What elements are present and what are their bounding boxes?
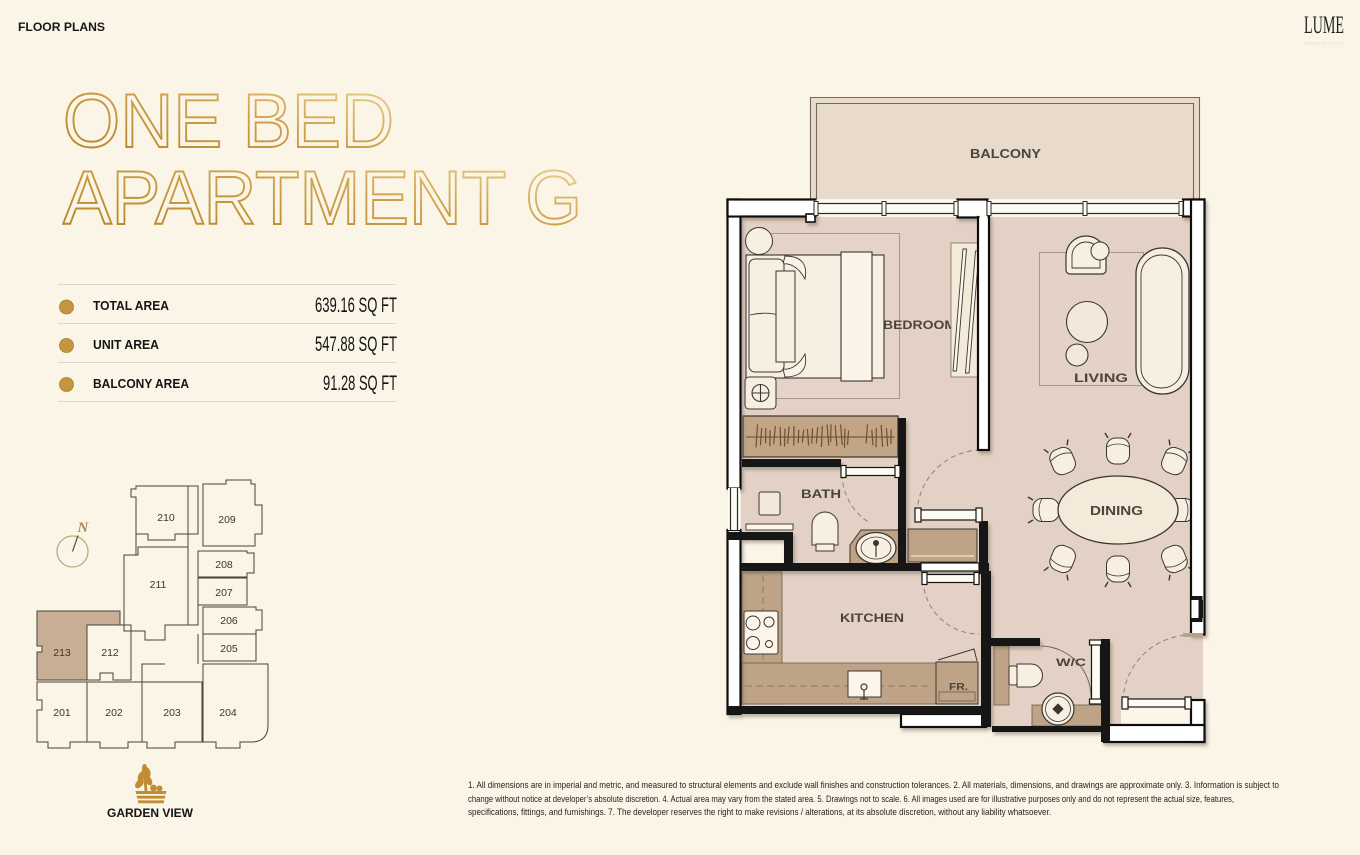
- svg-text:213: 213: [53, 647, 71, 659]
- svg-text:210: 210: [157, 512, 175, 524]
- svg-text:207: 207: [215, 587, 233, 599]
- svg-text:1. All dimensions are in imper: 1. All dimensions are in imperial and me…: [468, 780, 1279, 790]
- svg-text:211: 211: [150, 579, 167, 591]
- svg-text:204: 204: [219, 707, 237, 719]
- svg-text:specifications, fittings, and: specifications, fittings, and furnishing…: [468, 807, 1051, 817]
- svg-text:203: 203: [163, 707, 181, 719]
- svg-text:205: 205: [220, 643, 238, 655]
- svg-text:206: 206: [220, 615, 238, 627]
- svg-text:APARTMENT G: APARTMENT G: [63, 156, 582, 241]
- svg-text:BATH: BATH: [801, 487, 841, 501]
- svg-text:FR.: FR.: [949, 681, 968, 693]
- svg-text:BALCONY AREA: BALCONY AREA: [93, 377, 189, 391]
- svg-text:N: N: [77, 520, 90, 536]
- svg-text:change without notice at devel: change without notice at developer’s abs…: [468, 794, 1234, 804]
- svg-text:209: 209: [218, 514, 236, 526]
- svg-text:202: 202: [105, 707, 123, 719]
- svg-text:BEDROOM: BEDROOM: [883, 318, 956, 332]
- svg-text:BALCONY: BALCONY: [970, 147, 1042, 161]
- svg-text:LIVING: LIVING: [1074, 371, 1128, 385]
- svg-text:TOTAL AREA: TOTAL AREA: [93, 299, 169, 313]
- svg-text:212: 212: [101, 647, 119, 659]
- svg-text:ONE BED: ONE BED: [63, 79, 394, 164]
- svg-text:KITCHEN: KITCHEN: [840, 611, 904, 625]
- svg-text:208: 208: [215, 559, 233, 571]
- svg-text:91.28 SQ FT: 91.28 SQ FT: [323, 372, 397, 395]
- svg-text:DINING: DINING: [1090, 503, 1143, 518]
- svg-text:UNIT AREA: UNIT AREA: [93, 338, 159, 352]
- svg-text:RESIDENCES: RESIDENCES: [1304, 41, 1345, 46]
- svg-text:LUME: LUME: [1304, 12, 1344, 39]
- svg-text:639.16 SQ FT: 639.16 SQ FT: [315, 294, 397, 317]
- svg-text:FLOOR PLANS: FLOOR PLANS: [18, 22, 105, 34]
- svg-text:GARDEN VIEW: GARDEN VIEW: [107, 808, 193, 820]
- svg-text:201: 201: [53, 707, 71, 719]
- svg-text:547.88 SQ FT: 547.88 SQ FT: [315, 333, 397, 356]
